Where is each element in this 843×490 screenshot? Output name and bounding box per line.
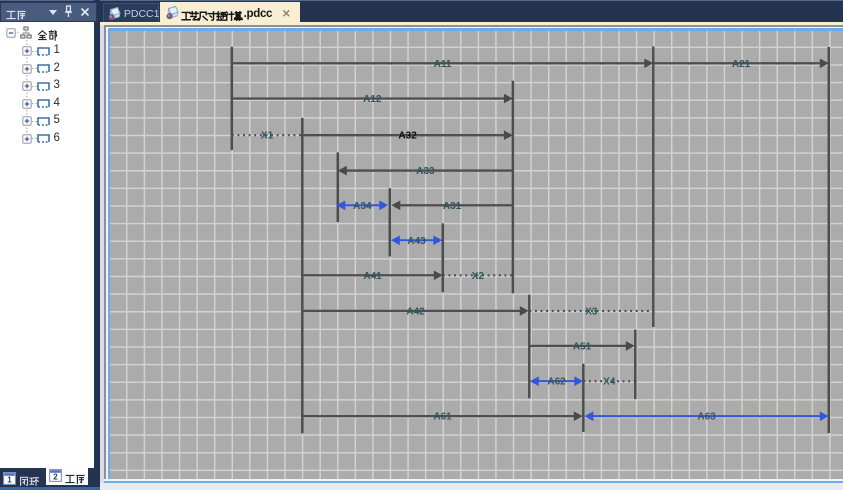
svg-text:X1: X1 bbox=[261, 131, 274, 142]
svg-text:A31: A31 bbox=[443, 201, 462, 212]
svg-text:A61: A61 bbox=[433, 412, 452, 423]
svg-text:2: 2 bbox=[54, 472, 59, 481]
svg-text:A51: A51 bbox=[573, 341, 592, 352]
svg-text:A12: A12 bbox=[363, 94, 382, 105]
svg-text:A63: A63 bbox=[697, 412, 716, 423]
svg-text:X2: X2 bbox=[472, 271, 485, 282]
svg-text:A34: A34 bbox=[353, 201, 372, 212]
svg-text:1: 1 bbox=[7, 475, 12, 484]
svg-text:A11: A11 bbox=[434, 59, 452, 70]
svg-text:X4: X4 bbox=[603, 377, 616, 388]
svg-text:A21: A21 bbox=[732, 59, 751, 70]
svg-text:X3: X3 bbox=[585, 306, 598, 317]
svg-text:A42: A42 bbox=[406, 306, 425, 317]
svg-text:A33: A33 bbox=[416, 166, 435, 177]
svg-text:A62: A62 bbox=[547, 377, 566, 388]
svg-text:A41: A41 bbox=[363, 271, 382, 282]
svg-text:A43: A43 bbox=[407, 236, 426, 247]
svg-text:A32: A32 bbox=[398, 131, 417, 142]
